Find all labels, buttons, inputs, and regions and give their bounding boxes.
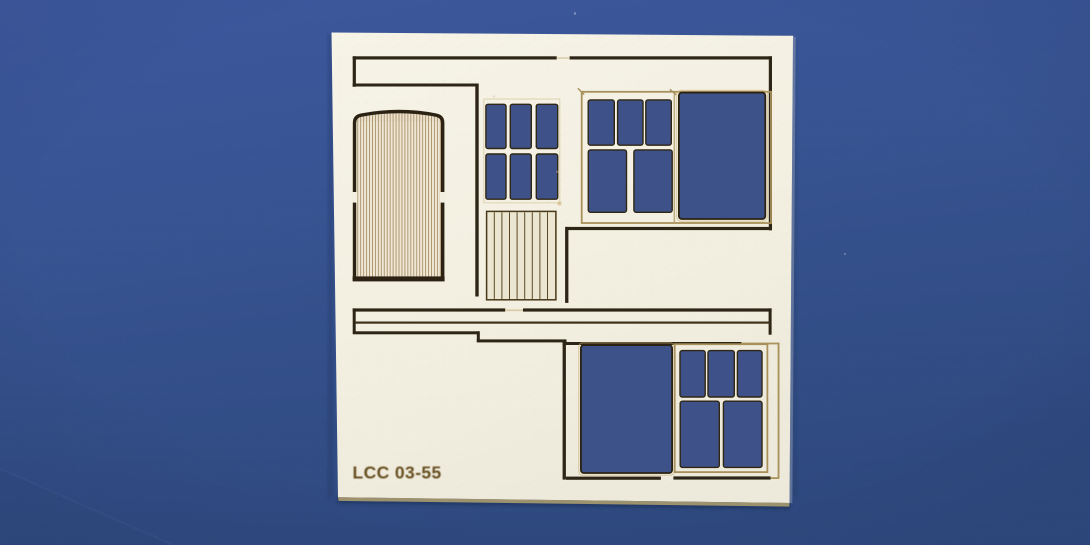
svg-text:LCC 03-55: LCC 03-55 [353, 463, 442, 483]
